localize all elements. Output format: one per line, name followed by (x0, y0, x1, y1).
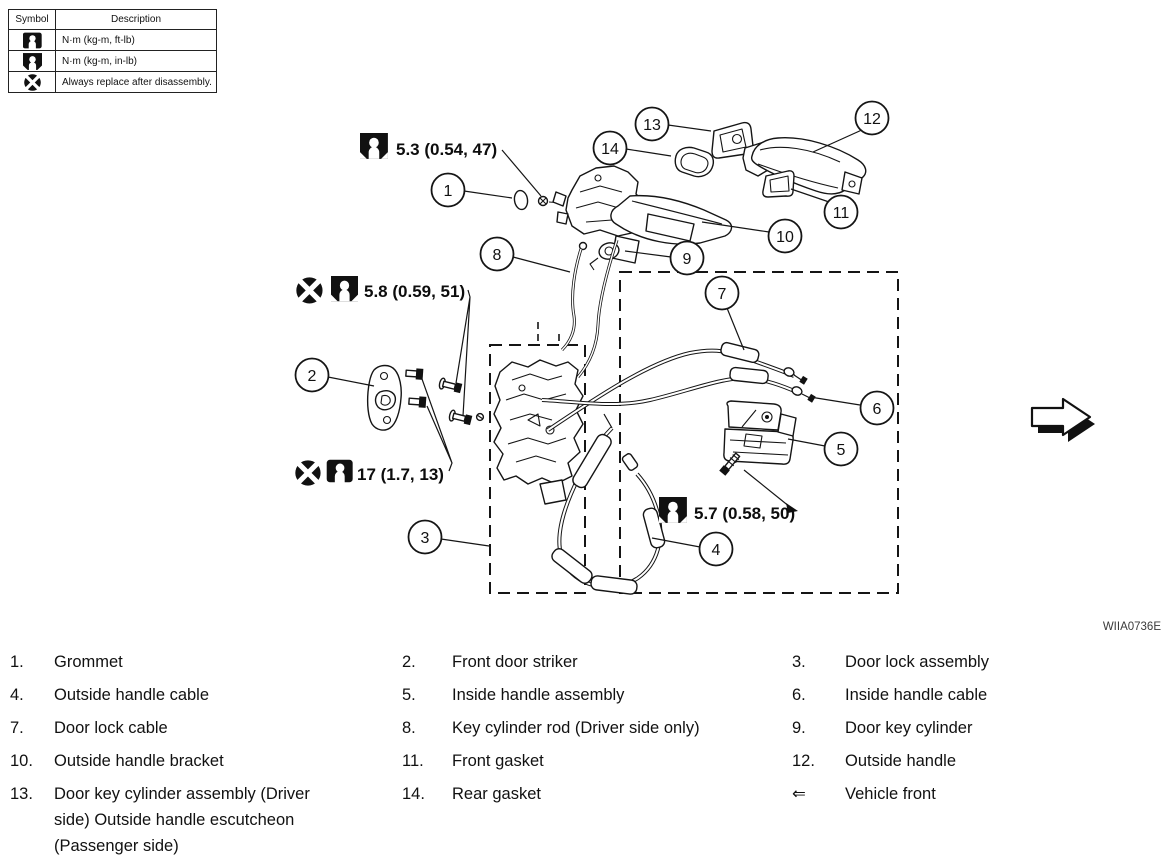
symbol-description: N·m (kg-m, ft-lb) (56, 30, 217, 51)
washer-bolt (448, 410, 472, 426)
striker-bolt (406, 368, 424, 380)
torque-inlb-icon (360, 133, 388, 159)
table-row: N·m (kg-m, ft-lb) (9, 30, 217, 51)
svg-text:2: 2 (308, 368, 317, 385)
torque-spec-5-3: 5.3 (0.54, 47) (360, 133, 497, 159)
exploded-diagram: 1 2 3 4 5 6 7 8 9 10 11 12 13 14 5.3 (0.… (0, 0, 1167, 648)
symbol-legend-table: Symbol Description N·m (kg-m, ft-lb) N·m… (8, 9, 217, 93)
grommet-part (513, 190, 529, 211)
front-gasket-part (763, 171, 794, 197)
table-row: Always replace after disassembly. (9, 72, 217, 93)
dashed-cable-exit (538, 322, 559, 346)
torque-spec-5-8: 5.8 (0.59, 51) (296, 276, 465, 304)
legend-item-8: 8.Key cylinder rod (Driver side only) (402, 715, 792, 741)
svg-text:11: 11 (833, 205, 850, 222)
callout-2: 2 (296, 359, 329, 392)
door-lock-assembly-part (494, 360, 583, 504)
torque-ftlb-icon (23, 32, 42, 49)
svg-text:14: 14 (601, 141, 619, 158)
legend-item-2: 2.Front door striker (402, 649, 792, 675)
legend-item-1: 1.Grommet (10, 649, 402, 675)
symbol-description: N·m (kg-m, in-lb) (56, 51, 217, 72)
svg-text:5: 5 (837, 442, 846, 459)
callout-1: 1 (432, 174, 465, 207)
legend-item-14: 14.Rear gasket (402, 781, 792, 859)
legend-item-11: 11.Front gasket (402, 748, 792, 774)
callout-3: 3 (409, 521, 442, 554)
legend-item-9: 9.Door key cylinder (792, 715, 1167, 741)
legend-item-5: 5.Inside handle assembly (402, 682, 792, 708)
callout-9: 9 (671, 242, 704, 275)
torque-inlb-icon (23, 53, 42, 70)
svg-text:3: 3 (421, 530, 430, 547)
legend-item-6: 6.Inside handle cable (792, 682, 1167, 708)
callout-6: 6 (861, 392, 894, 425)
legend-item-10: 10.Outside handle bracket (10, 748, 402, 774)
svg-text:4: 4 (712, 542, 721, 559)
torque-ftlb-icon (327, 460, 353, 483)
legend-item-4: 4.Outside handle cable (10, 682, 402, 708)
figure-code: WIIA0736E (1103, 621, 1161, 633)
front-door-striker-part (368, 366, 402, 431)
parts-legend: 1.Grommet 2.Front door striker 3.Door lo… (0, 649, 1167, 864)
spec-58-leader (456, 290, 470, 416)
torque-spec-5-7: 5.7 (0.58, 50) (659, 497, 795, 523)
callout-5: 5 (825, 433, 858, 466)
svg-text:5.8 (0.59, 51): 5.8 (0.59, 51) (364, 282, 465, 301)
outside-handle-part (743, 138, 866, 194)
legend-item-vehicle-front: ⇐Vehicle front (792, 781, 1167, 859)
legend-item-12: 12.Outside handle (792, 748, 1167, 774)
legend-item-13: 13.Door key cylinder assembly (Driver si… (10, 781, 402, 859)
callout-10: 10 (769, 220, 802, 253)
callout-11: 11 (825, 196, 858, 229)
spec-17-leader (422, 379, 452, 471)
outside-handle-bracket-part (611, 196, 732, 245)
spec-53-leader (502, 150, 541, 196)
svg-text:5.3 (0.54, 47): 5.3 (0.54, 47) (396, 140, 497, 159)
svg-text:5.7 (0.58, 50): 5.7 (0.58, 50) (694, 504, 795, 523)
direction-arrow-icon (1032, 399, 1095, 442)
service-manual-figure-page: 1 2 3 4 5 6 7 8 9 10 11 12 13 14 5.3 (0.… (0, 0, 1167, 864)
table-row: N·m (kg-m, in-lb) (9, 51, 217, 72)
callout-14: 14 (594, 132, 627, 165)
torque-inlb-icon (331, 276, 358, 301)
rear-gasket-part (675, 147, 713, 176)
callout-4: 4 (700, 533, 733, 566)
legend-item-7: 7.Door lock cable (10, 715, 402, 741)
symbol-description: Always replace after disassembly. (56, 72, 217, 93)
svg-text:6: 6 (873, 401, 882, 418)
svg-text:8: 8 (493, 247, 502, 264)
callout-12: 12 (856, 102, 889, 135)
description-header: Description (56, 10, 217, 30)
replace-icon (24, 74, 41, 91)
torque-inlb-icon (659, 497, 687, 523)
striker-bolt (409, 396, 427, 408)
replace-icon (295, 460, 320, 485)
svg-text:1: 1 (444, 183, 453, 200)
svg-text:13: 13 (643, 117, 661, 134)
handle-to-lock-cable (578, 240, 617, 377)
svg-text:7: 7 (718, 286, 727, 303)
washer-bolt (438, 378, 462, 394)
torque-spec-17: 17 (1.7, 13) (295, 460, 444, 486)
svg-text:9: 9 (683, 251, 692, 268)
svg-text:10: 10 (776, 229, 794, 246)
callout-13: 13 (636, 108, 669, 141)
vehicle-front-arrow-icon: ⇐ (792, 781, 845, 807)
callout-8: 8 (481, 238, 514, 271)
svg-text:12: 12 (863, 111, 881, 128)
callout-7: 7 (706, 277, 739, 310)
symbol-header: Symbol (9, 10, 56, 30)
key-cylinder-rod-part (562, 243, 587, 351)
svg-text:17 (1.7, 13): 17 (1.7, 13) (357, 465, 444, 484)
replace-icon (296, 277, 322, 303)
legend-item-3: 3.Door lock assembly (792, 649, 1167, 675)
small-screw (477, 414, 484, 421)
